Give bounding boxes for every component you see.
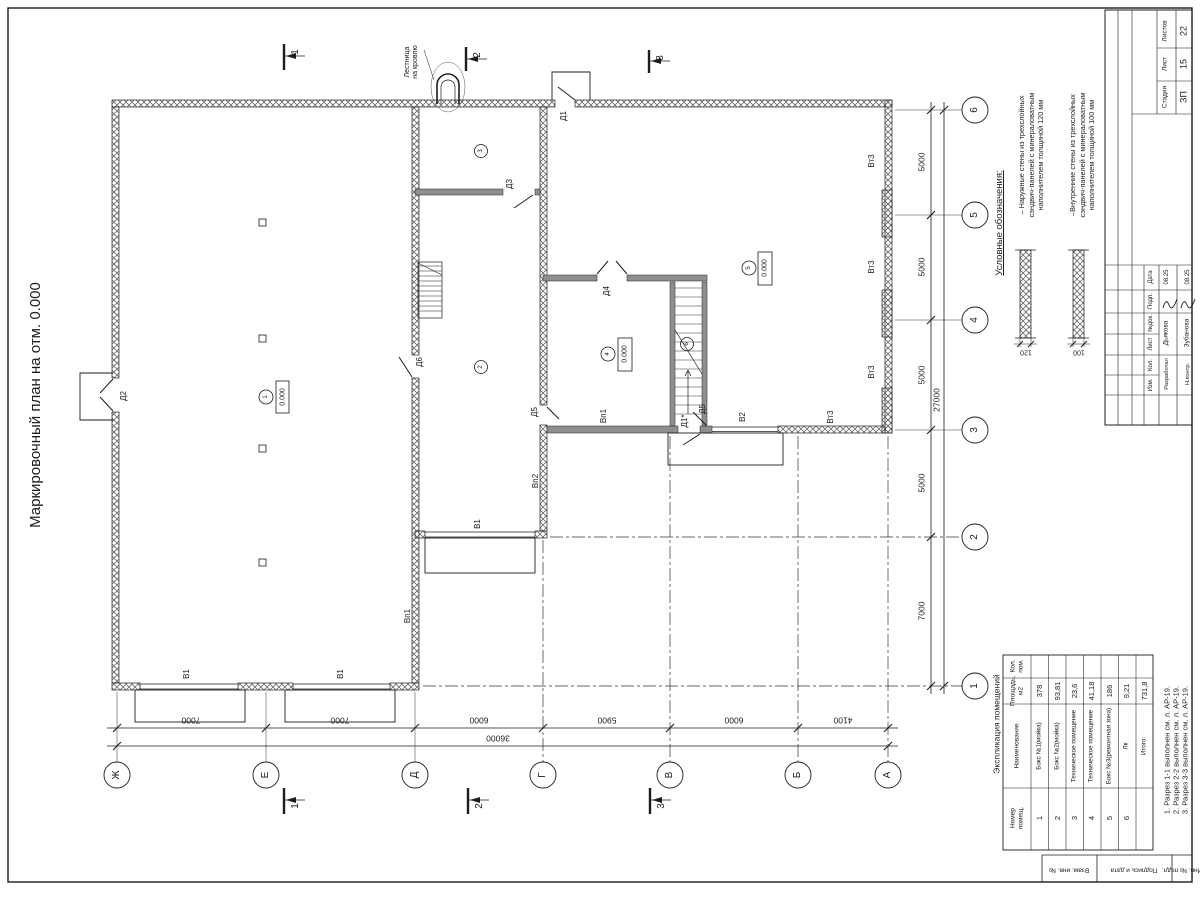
table-header-2: Площадь, м2: [1010, 676, 1025, 706]
table-cell-4-0: 5: [1106, 816, 1114, 820]
table-cell-1-0: 2: [1054, 816, 1062, 820]
stamp-total-value: 22: [1179, 26, 1188, 36]
stair-mezzanine: [418, 262, 442, 318]
legend-dim-120: 120: [1020, 348, 1032, 355]
grid-col-b: Б: [793, 772, 804, 779]
stamp-sheet-label: Лист: [1163, 57, 1170, 71]
drawing-sheet: Маркировочный план на отм. 0.000Эксплика…: [0, 0, 1200, 900]
room-table-title: Экспликация помещений: [993, 674, 1002, 773]
section-label-1-top: 1: [291, 49, 302, 55]
interior-walls: [415, 189, 712, 433]
label-vt3-3: Вт3: [868, 365, 876, 378]
door-label-d5-1: Д5: [531, 407, 539, 417]
stamp-sheet-value: 15: [1179, 59, 1188, 69]
floor-marks: [259, 145, 772, 567]
gates-and-aprons: [80, 72, 783, 722]
door-leaves: [100, 87, 706, 445]
dim-right-5: 7000: [918, 602, 927, 621]
legend-wall-sample-120: [1020, 250, 1031, 338]
legend-title: Условные обозначения:: [995, 170, 1005, 275]
frame-cell-inv: Инв. № подл.: [1162, 866, 1200, 873]
table-cell-1-1: Бокс №2(мойка): [1054, 722, 1061, 770]
stamp-name-developed: Дьякова: [1164, 321, 1171, 346]
apron-v1-3: [425, 538, 535, 573]
door-label-d2: Д2: [120, 391, 128, 401]
stamp-col-sheet: Лист: [1148, 337, 1154, 350]
dim-bottom-4: 5900: [598, 716, 617, 725]
section-label-1-bottom: 1: [291, 803, 302, 809]
stamp-col-sign: Подп.: [1148, 293, 1154, 309]
label-vt3-4: Вт3: [827, 410, 835, 423]
door-label-d5-2: Д5: [699, 404, 707, 414]
gate-label-v2: В2: [739, 412, 747, 422]
table-cell-0-2: 378: [1036, 685, 1044, 698]
signature-strokes: [1163, 299, 1195, 308]
stamp-col-change: Изм.: [1148, 379, 1154, 392]
table-cell-2-0: 3: [1071, 816, 1079, 820]
stamp-col-date: Дата: [1148, 270, 1154, 283]
grid-col-d: Д: [410, 772, 421, 779]
dim-right-4: 5000: [918, 474, 927, 493]
table-cell-6-1: Итого:: [1141, 737, 1148, 755]
table-cell-3-1: Техническое помещение: [1089, 710, 1096, 782]
table-cell-3-2: 41,18: [1088, 682, 1096, 701]
label-vp1-1: Вп1: [404, 609, 412, 623]
room-tag-6: 6: [684, 342, 690, 345]
dim-right-3: 5000: [918, 366, 927, 385]
section-notes: 1. Разрез 1-1 выполнен см. л. АР-19. 2. …: [1163, 686, 1190, 814]
frame-cell-vzam: Взам. инв. №: [1049, 866, 1089, 873]
table-cell-6-2: 731,8: [1141, 682, 1149, 701]
label-vp1-2: Вп1: [600, 409, 608, 423]
grid-col-g: Г: [538, 772, 549, 777]
legend-item-exterior: – Наружные стены из трехслойных сэндвич-…: [1017, 93, 1046, 218]
room-tag-1: 1: [263, 395, 269, 398]
table-cell-0-0: 1: [1036, 816, 1044, 820]
table-cell-5-2: 9,21: [1123, 684, 1131, 699]
stamp-stage-label: Стадия: [1163, 86, 1170, 108]
room-tag-5: 5: [746, 266, 752, 269]
section-label-2-bottom: 2: [475, 803, 486, 809]
sheet-title: Маркировочный план на отм. 0.000: [28, 282, 44, 528]
table-cell-4-1: Бокс №3(ремонтная зона): [1106, 708, 1113, 784]
elevation-mark-room4: 0.000: [621, 345, 628, 363]
stamp-name-control: Зубанова: [1185, 319, 1192, 348]
vestibule-d1: [552, 72, 590, 100]
dim-bottom-6: 4100: [834, 716, 853, 725]
door-label-d6: Д6: [416, 357, 424, 367]
legend-symbols: [1014, 250, 1090, 347]
door-label-d4: Д4: [603, 286, 611, 296]
dim-bottom-total: 36000: [486, 734, 510, 743]
stamp-role-control: Н.контр.: [1185, 363, 1191, 385]
stairs: [418, 262, 702, 414]
stamp-date-control: 08.25: [1185, 269, 1191, 284]
grid-row-5: 5: [970, 212, 981, 218]
dim-bottom-1: 7000: [182, 716, 201, 725]
stamp-date-developed: 08.25: [1164, 269, 1170, 284]
grid-row-6: 6: [970, 107, 981, 113]
grid-row-4: 4: [970, 317, 981, 323]
dim-right-1: 5000: [918, 153, 927, 172]
grid-col-zh: Ж: [112, 770, 123, 779]
stair-lk-treads: [675, 288, 702, 414]
label-vt3-1: Вт3: [868, 154, 876, 167]
table-header-3: Кол. пом.: [1010, 659, 1025, 672]
grid-row-3: 3: [970, 427, 981, 433]
apron-v2: [668, 433, 783, 465]
vestibule-d2: [80, 373, 113, 420]
dim-right-2: 5000: [918, 258, 927, 277]
table-cell-4-2: 186: [1106, 685, 1114, 698]
axis-lines: [117, 110, 962, 762]
legend-wall-sample-100: [1073, 250, 1084, 338]
roof-ladder-label: Лестница на кровлю: [404, 45, 420, 78]
table-header-1: Наименование: [1013, 723, 1021, 768]
table-cell-2-1: Техническое помещение: [1071, 710, 1078, 782]
stamp-total-label: Листов: [1163, 20, 1170, 41]
section-label-2-top: 2: [473, 52, 484, 58]
grid-row-2: 2: [970, 534, 981, 540]
elevation-mark-room1: 0.000: [279, 388, 286, 406]
room-tag-4: 4: [605, 352, 611, 355]
exterior-walls: [112, 100, 892, 690]
table-cell-2-2: 23,6: [1071, 684, 1079, 699]
elevation-mark-room5: 0.000: [761, 259, 768, 277]
table-cell-0-1: Бокс №1(мойка): [1037, 722, 1044, 770]
label-vt3-2: Вт3: [868, 260, 876, 273]
label-vp2: Вп2: [532, 474, 540, 488]
table-cell-5-0: 6: [1123, 816, 1131, 820]
door-label-d3: Д3: [506, 179, 514, 189]
table-header-0: Номер помещ.: [1010, 807, 1025, 829]
section-label-3-top: 3: [656, 55, 667, 61]
legend-dim-100: 100: [1073, 348, 1085, 355]
section-label-3-bottom: 3: [657, 803, 668, 809]
grid-col-e: Е: [261, 772, 272, 779]
stamp-col-docnum: №док.: [1148, 314, 1154, 332]
dim-right-total: 27000: [933, 388, 942, 412]
legend-item-interior: –Внутренние стены из трехслойных сэндвич…: [1068, 93, 1097, 218]
dim-bottom-2: 7000: [331, 716, 350, 725]
stamp-stage-value: ЗП: [1179, 91, 1188, 103]
gate-label-v1-2: В1: [337, 669, 345, 679]
table-cell-3-0: 4: [1088, 816, 1096, 820]
room-tag-3: 3: [478, 149, 484, 152]
dim-bottom-3: 6000: [470, 716, 489, 725]
grid-row-1: 1: [970, 683, 981, 689]
door-label-d1s: Д1*: [681, 415, 689, 428]
grid-col-v: В: [665, 772, 676, 779]
grid-col-a: А: [883, 772, 894, 779]
dim-bottom-5: 6000: [725, 716, 744, 725]
room-tag-2: 2: [478, 365, 484, 368]
frame-cell-podpis: Подпись и дата: [1111, 866, 1158, 873]
door-label-d1: Д1: [560, 111, 568, 121]
table-cell-1-2: 93,81: [1054, 682, 1062, 701]
gate-label-v1-3: В1: [474, 519, 482, 529]
gate-label-v1-1: В1: [183, 669, 191, 679]
table-cell-5-1: Лк: [1124, 743, 1131, 750]
stamp-col-qty: Кол.: [1148, 359, 1154, 371]
stamp-role-developed: Разработал: [1164, 358, 1170, 390]
